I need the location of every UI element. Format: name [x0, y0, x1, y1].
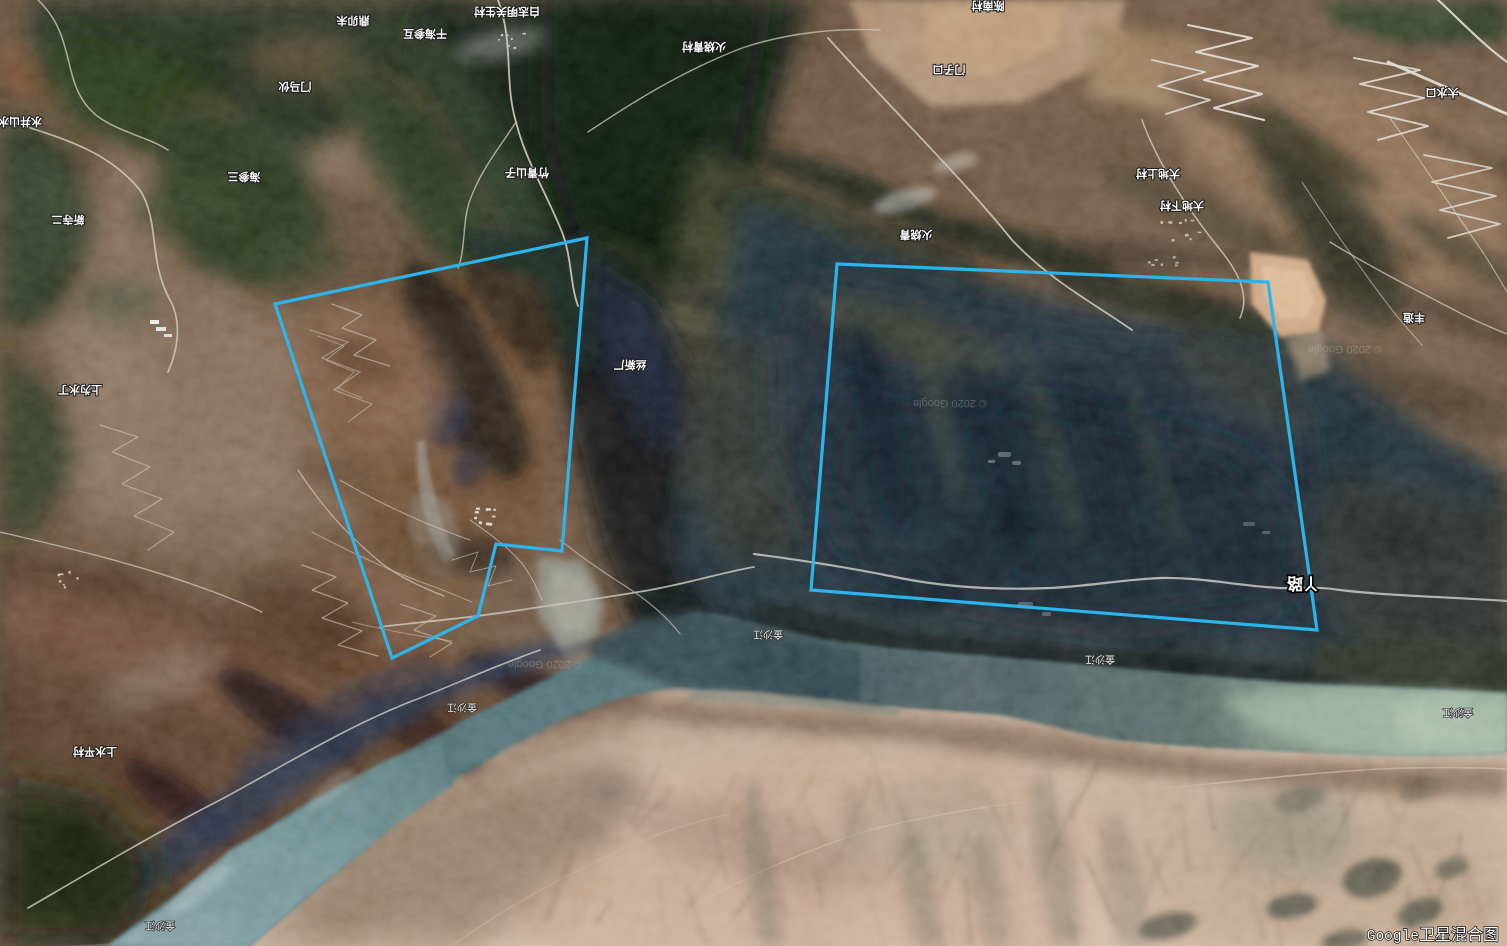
svg-text:金沙江: 金沙江 — [753, 628, 783, 641]
svg-text:门马伙: 门马伙 — [278, 80, 312, 94]
svg-text:上为水丁: 上为水丁 — [58, 383, 102, 397]
svg-text:金沙江: 金沙江 — [447, 701, 477, 714]
svg-text:Google卫星混合图: Google卫星混合图 — [1367, 926, 1499, 945]
svg-text:新寺二: 新寺二 — [52, 213, 85, 227]
svg-text:丫路: 丫路 — [1286, 574, 1319, 593]
svg-text:火烧青村: 火烧青村 — [682, 40, 726, 54]
svg-text:© 2020 Google: © 2020 Google — [1148, 788, 1222, 800]
svg-text:金沙江: 金沙江 — [145, 919, 175, 932]
svg-text:大地下村: 大地下村 — [1160, 199, 1204, 213]
svg-text:门子口: 门子口 — [933, 63, 966, 77]
svg-text:白志明关生村: 白志明关生村 — [474, 5, 540, 19]
svg-text:丰造: 丰造 — [1402, 311, 1425, 325]
svg-text:© 2020 Google: © 2020 Google — [1308, 343, 1382, 355]
svg-text:上水平村: 上水平村 — [73, 745, 117, 759]
svg-text:干海参互: 干海参互 — [403, 27, 447, 41]
svg-text:金沙江: 金沙江 — [1085, 653, 1115, 666]
svg-text:金沙江: 金沙江 — [1443, 706, 1473, 719]
svg-text:陈南村: 陈南村 — [972, 0, 1005, 13]
svg-text:海参三: 海参三 — [228, 170, 261, 184]
svg-text:© 2020 Google: © 2020 Google — [913, 397, 987, 409]
svg-text:鼎卯未: 鼎卯未 — [336, 14, 370, 28]
svg-text:火烧青: 火烧青 — [900, 228, 933, 242]
svg-text:大水口: 大水口 — [1426, 86, 1459, 100]
svg-text:© 2020 Google: © 2020 Google — [508, 658, 582, 670]
svg-text:丝新厂: 丝新厂 — [614, 358, 647, 372]
svg-text:水井山水: 水井山水 — [0, 115, 42, 129]
svg-text:大地上村: 大地上村 — [1136, 167, 1180, 181]
svg-text:竹青山子: 竹青山子 — [505, 166, 550, 180]
